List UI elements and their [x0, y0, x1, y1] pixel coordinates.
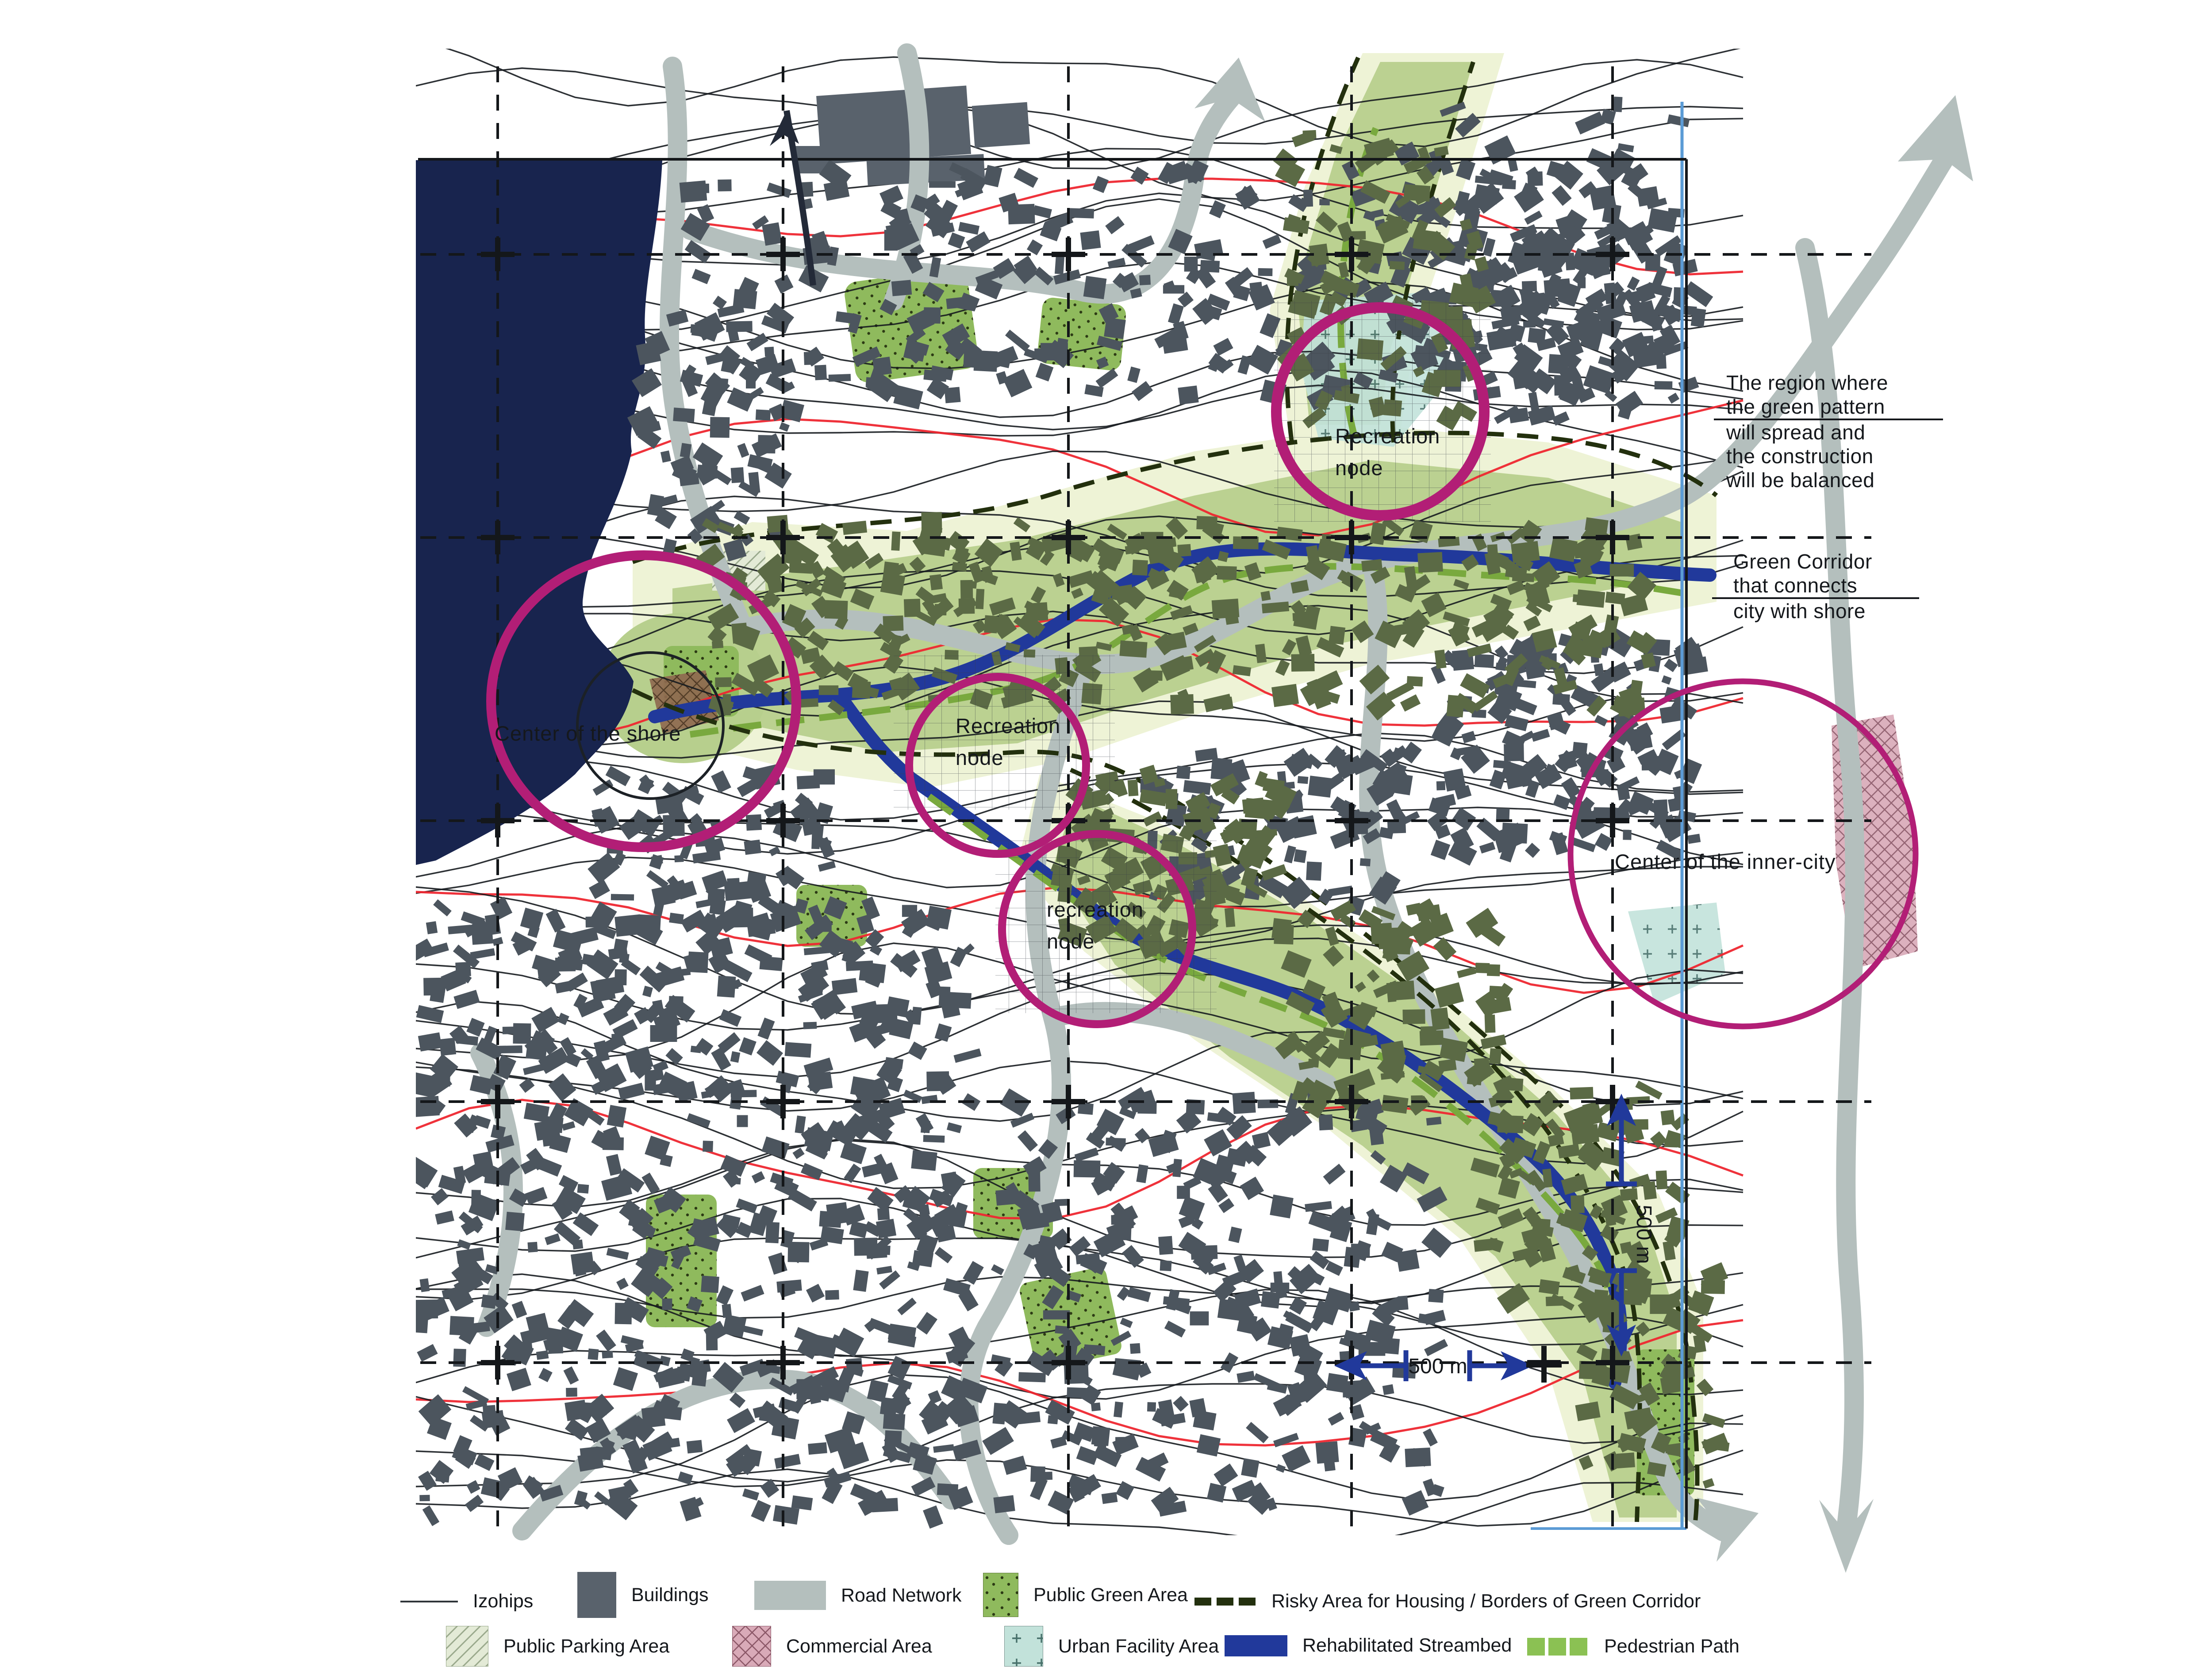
legend-item-pedestrian-path: Pedestrian Path: [1527, 1636, 1740, 1657]
sea: [416, 160, 662, 865]
legend-label: Public Green Area: [1033, 1584, 1188, 1606]
recreation-node-low-label-line2: node: [1047, 930, 1095, 953]
legend-item-public-parking: Public Parking Area: [446, 1626, 669, 1667]
note-line: will be balanced: [1726, 468, 1941, 492]
legend-item-road-network: Road Network: [754, 1581, 961, 1610]
recreation-node-mid-label-line1: Recreation: [956, 714, 1060, 738]
streambed-swatch-icon: [1225, 1635, 1287, 1656]
urban-facility-area-right: [1628, 903, 1725, 1004]
risky-dashes-swatch-icon: [1194, 1597, 1256, 1606]
legend-item-buildings: Buildings: [577, 1572, 709, 1618]
recreation-node-top-label-line2: node: [1335, 456, 1383, 480]
note-line-underlined: the green pattern: [1714, 395, 1943, 420]
scale-vertical-label: 500 m: [1632, 1205, 1655, 1264]
legend-item-commercial: Commercial Area: [732, 1626, 932, 1667]
legend-item-public-green: Public Green Area: [983, 1573, 1188, 1617]
legend-item-streambed: Rehabilitated Streambed: [1225, 1635, 1512, 1656]
note-green-pattern-region: The region where the green pattern will …: [1726, 371, 1941, 492]
legend-label: Public Parking Area: [503, 1636, 669, 1657]
legend-label: Rehabilitated Streambed: [1302, 1635, 1512, 1656]
legend-label: Road Network: [841, 1585, 961, 1606]
pedestrian-swatch-icon: [1527, 1637, 1589, 1656]
legend-label: Urban Facility Area: [1058, 1636, 1219, 1657]
legend: Izohips Buildings Road Network Public Gr…: [0, 1568, 2212, 1675]
izohips-line-swatch-icon: [400, 1597, 458, 1606]
planning-map-canvas: 500 m 500 m Recreation node Recreation n…: [0, 0, 2212, 1675]
legend-label: Izohips: [473, 1590, 533, 1612]
note-line: will spread and: [1726, 420, 1941, 444]
recreation-node-mid-label-line2: node: [956, 746, 1004, 769]
road-swatch-icon: [754, 1581, 826, 1610]
green-area-swatch-icon: [983, 1573, 1018, 1617]
legend-label: Risky Area for Housing / Borders of Gree…: [1271, 1590, 1701, 1612]
legend-item-izohips: Izohips: [400, 1590, 533, 1612]
center-shore-label: Center of the shore: [495, 722, 681, 745]
note-green-corridor: Green Corridor that connects city with s…: [1733, 549, 1924, 623]
note-line-underlined: that connects: [1712, 573, 1919, 599]
recreation-node-top-label-line1: Recreation: [1335, 424, 1440, 448]
scale-horizontal-label: 500 m: [1408, 1355, 1467, 1378]
legend-item-risky-area: Risky Area for Housing / Borders of Gree…: [1194, 1590, 1701, 1612]
commercial-swatch-icon: [732, 1626, 771, 1667]
note-line: city with shore: [1733, 599, 1924, 623]
note-line: the construction: [1726, 444, 1941, 468]
center-inner-city-label: Center of the inner-city: [1615, 850, 1836, 873]
legend-label: Commercial Area: [786, 1636, 932, 1657]
recreation-node-low-label-line1: recreation: [1047, 898, 1144, 921]
legend-label: Buildings: [631, 1584, 709, 1606]
note-line: The region where: [1726, 371, 1941, 395]
note-line: Green Corridor: [1733, 549, 1924, 573]
building-swatch-icon: [577, 1572, 616, 1618]
legend-label: Pedestrian Path: [1604, 1636, 1740, 1657]
map-svg: 500 m 500 m Recreation node Recreation n…: [0, 0, 2212, 1675]
urban-facility-swatch-icon: [1004, 1626, 1043, 1667]
parking-swatch-icon: [446, 1626, 488, 1667]
legend-item-urban-facility: Urban Facility Area: [1004, 1626, 1219, 1667]
